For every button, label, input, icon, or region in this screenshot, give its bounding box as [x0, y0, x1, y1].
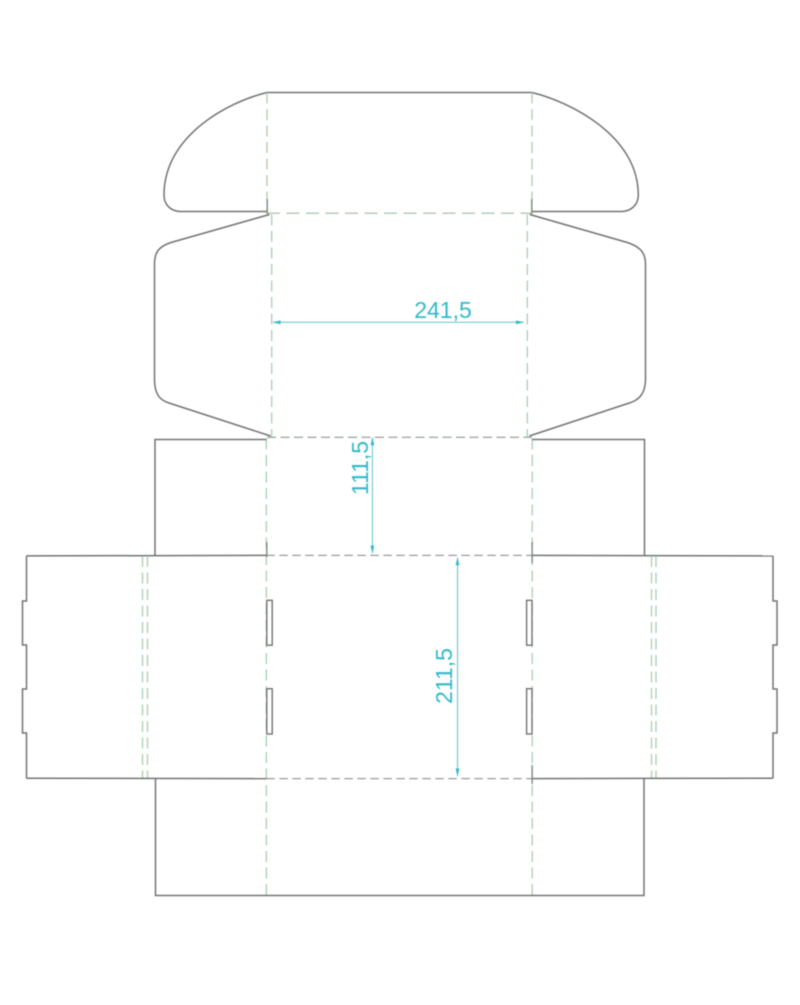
svg-text:241,5: 241,5	[414, 297, 472, 323]
svg-text:211,5: 211,5	[431, 648, 457, 704]
svg-text:111,5: 111,5	[347, 441, 373, 495]
